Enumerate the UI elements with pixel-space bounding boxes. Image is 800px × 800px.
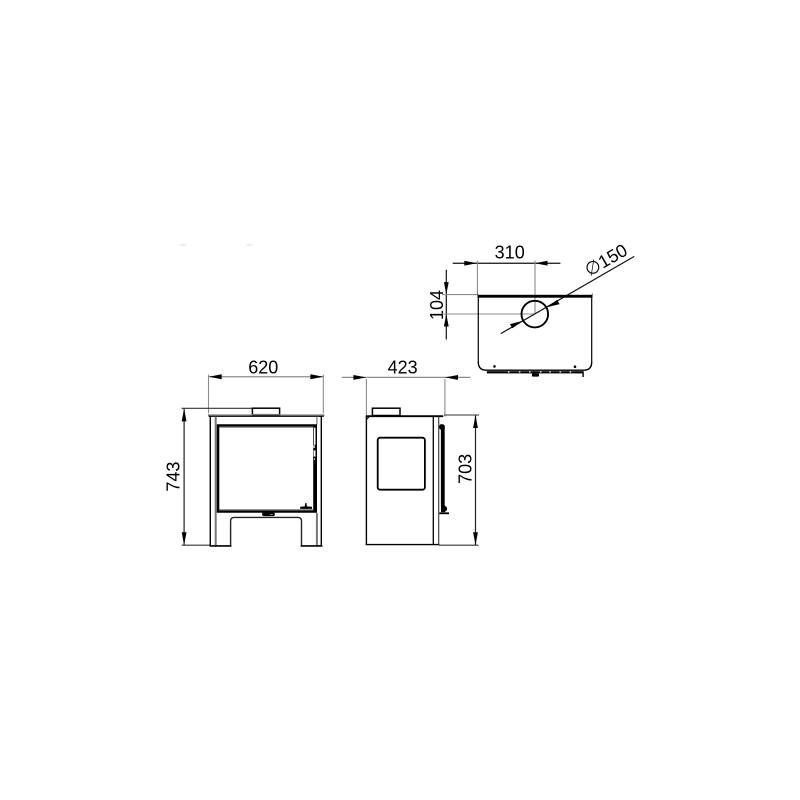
- svg-text:620: 620: [248, 357, 278, 377]
- svg-text:743: 743: [163, 462, 183, 492]
- svg-text:310: 310: [495, 243, 525, 263]
- svg-text:423: 423: [388, 357, 418, 377]
- svg-text:703: 703: [455, 454, 475, 484]
